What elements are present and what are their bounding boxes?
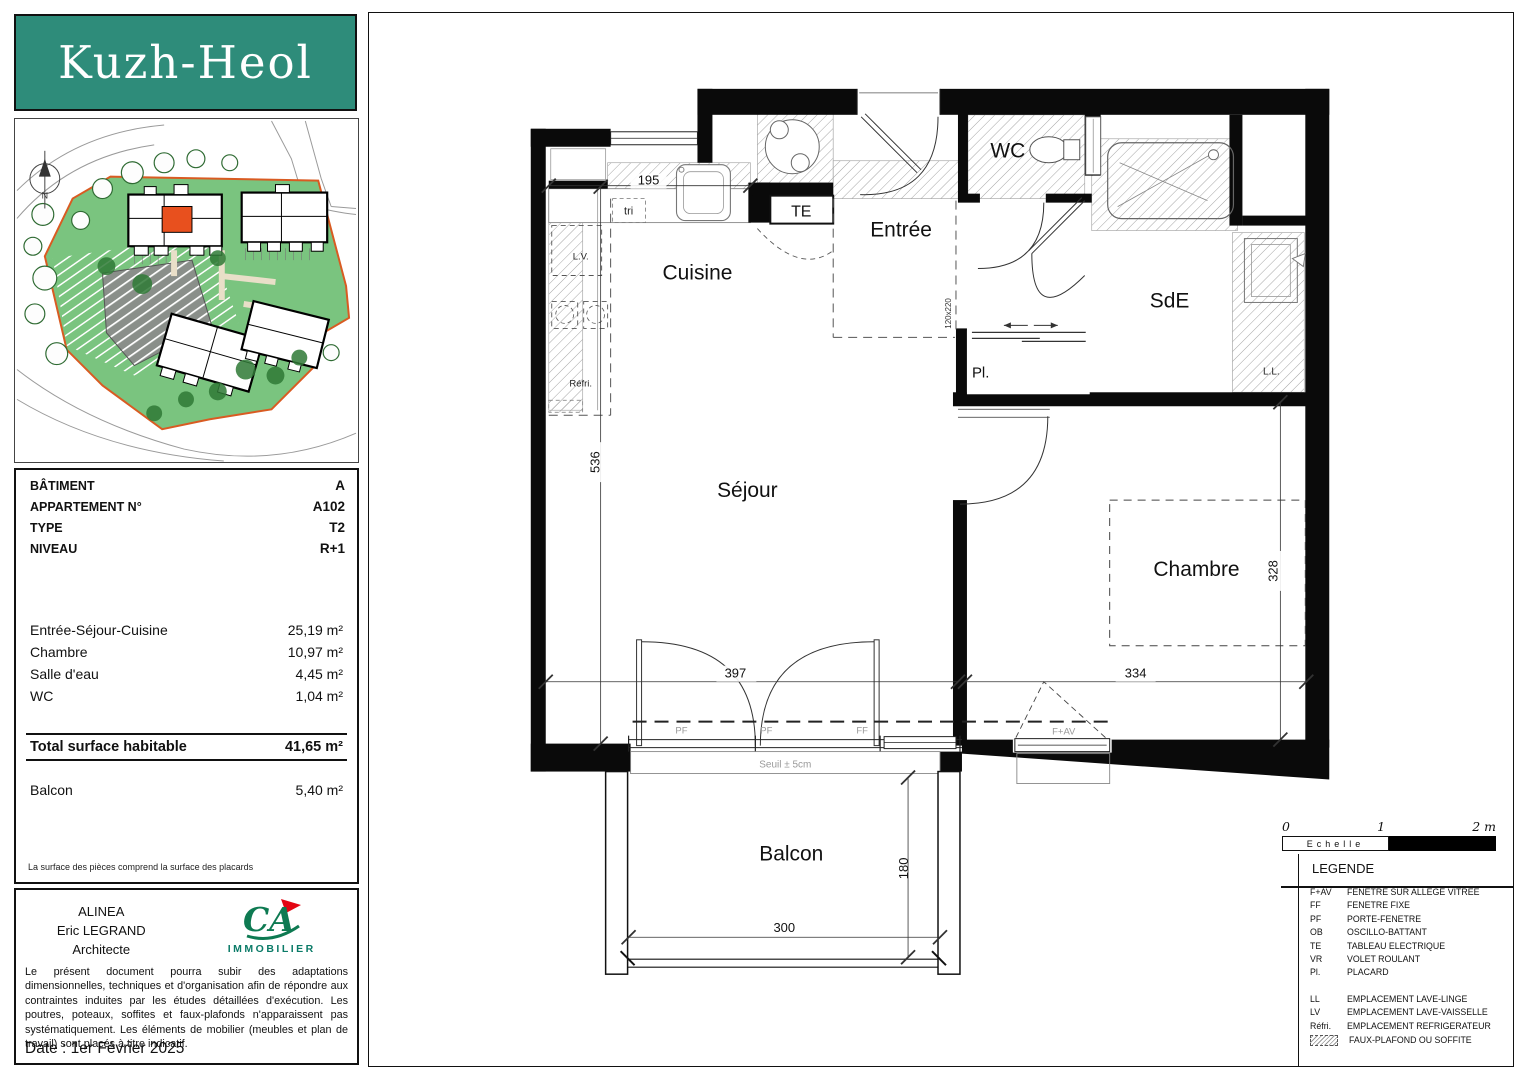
building-b xyxy=(242,185,328,252)
apartment-spec-table: BÂTIMENT A APPARTEMENT N° A102 TYPE T2 N… xyxy=(30,478,345,562)
hatch-swatch-icon xyxy=(1310,1035,1338,1046)
architect-panel: ALINEA Eric LEGRAND Architecte CA IMMOBI… xyxy=(14,888,359,1065)
site-plan-thumbnail: N xyxy=(14,118,359,463)
area-value: 1,04 m² xyxy=(296,688,343,704)
spec-value: A xyxy=(335,478,345,493)
area-row: Entrée-Séjour-Cuisine 25,19 m² xyxy=(30,622,343,644)
bedroom-door-arc xyxy=(960,416,1048,504)
developer-brand: CA IMMOBILIER xyxy=(187,898,358,959)
ca-logo: CA xyxy=(241,898,303,942)
hatched-zones xyxy=(549,107,1305,412)
area-value: 10,97 m² xyxy=(288,644,343,660)
area-row: WC 1,04 m² xyxy=(30,688,343,710)
spec-label: BÂTIMENT xyxy=(30,479,95,493)
dim-536: 536 xyxy=(588,451,603,473)
sde-door-arc xyxy=(1032,254,1085,298)
window-label-pf1: PF xyxy=(675,726,687,737)
legend-abbr: F+AV xyxy=(1310,886,1347,899)
room-label-chambre: Chambre xyxy=(1153,558,1239,581)
scale-bar: 0 1 2 m Echelle xyxy=(1282,819,1496,851)
legend-abbr: PF xyxy=(1310,913,1347,926)
legend-title: LEGENDE xyxy=(1299,854,1513,876)
legend-items-group1: F+AV FENETRE SUR ALLEGE VITREE FF FENETR… xyxy=(1299,876,1513,980)
legend-abbr: LV xyxy=(1310,1006,1347,1019)
dim-halos xyxy=(588,174,1282,936)
legend-panel: LEGENDE F+AV FENETRE SUR ALLEGE VITREE F… xyxy=(1298,854,1513,1066)
label-tri: tri xyxy=(624,206,633,218)
spec-label: TYPE xyxy=(30,521,63,535)
legend-divider xyxy=(1281,886,1513,888)
area-label: WC xyxy=(30,688,53,704)
label-te: TE xyxy=(791,204,811,221)
legend-label: EMPLACEMENT REFRIGERATEUR xyxy=(1347,1020,1513,1033)
legend-item: FF FENETRE FIXE xyxy=(1310,899,1513,912)
spec-row: APPARTEMENT N° A102 xyxy=(30,499,345,520)
legend-item: TE TABLEAU ELECTRIQUE xyxy=(1310,940,1513,953)
architect-firm: ALINEA xyxy=(16,902,187,921)
plan-date: Date : 1er Février 2025 xyxy=(25,1040,184,1058)
plan-labels: Cuisine Entrée WC SdE Séjour Chambre Bal… xyxy=(569,140,1280,936)
scale-label: Echelle xyxy=(1282,836,1389,851)
room-label-wc: WC xyxy=(990,140,1025,163)
dim-195: 195 xyxy=(638,173,660,188)
legend-abbr: TE xyxy=(1310,940,1347,953)
pf-door-leaf-right xyxy=(874,640,879,746)
area-value: 25,19 m² xyxy=(288,622,343,638)
area-row: Salle d'eau 4,45 m² xyxy=(30,666,343,688)
balcony-label: Balcon xyxy=(30,782,73,798)
placard xyxy=(967,322,1090,394)
legend-faux-plafond-row: FAUX-PLAFOND OU SOFFITE xyxy=(1299,1034,1513,1047)
area-label: Chambre xyxy=(30,644,88,660)
project-logo: Kuzh-Heol xyxy=(14,14,357,111)
area-row: Chambre 10,97 m² xyxy=(30,644,343,666)
site-plan-drawing: N xyxy=(15,119,358,462)
scale-ticks: 0 1 2 m xyxy=(1282,819,1496,836)
legend-label: EMPLACEMENT LAVE-LINGE xyxy=(1347,993,1513,1006)
scale-0: 0 xyxy=(1282,819,1290,834)
legend-abbr: Pl. xyxy=(1310,966,1347,979)
architect-title: Architecte xyxy=(16,940,187,959)
legend-item: Réfri. EMPLACEMENT REFRIGERATEUR xyxy=(1310,1020,1513,1033)
window-label-fav: F+AV xyxy=(1052,727,1076,738)
spec-label: APPARTEMENT N° xyxy=(30,500,142,514)
label-door-size: 120x220 xyxy=(944,298,953,329)
label-lv: L.V. xyxy=(573,252,589,263)
total-area-row: Total surface habitable 41,65 m² xyxy=(26,733,347,761)
svg-text:N: N xyxy=(42,191,48,201)
total-value: 41,65 m² xyxy=(285,739,343,755)
project-logo-text: Kuzh-Heol xyxy=(58,36,313,89)
area-value: 4,45 m² xyxy=(296,666,343,682)
legend-label: VOLET ROULANT xyxy=(1347,953,1513,966)
legend-label: FENETRE FIXE xyxy=(1347,899,1513,912)
legend-label: PLACARD xyxy=(1347,966,1513,979)
scale-2m: 2 m xyxy=(1472,819,1496,834)
architect-identity: ALINEA Eric LEGRAND Architecte xyxy=(16,898,187,959)
dim-334: 334 xyxy=(1125,666,1147,681)
dim-180: 180 xyxy=(896,858,911,880)
legend-label: OSCILLO-BATTANT xyxy=(1347,926,1513,939)
pf-door-leaf-left xyxy=(637,640,642,746)
toilet xyxy=(1030,137,1068,163)
spec-row: TYPE T2 xyxy=(30,520,345,541)
legend-label: PORTE-FENETRE xyxy=(1347,913,1513,926)
window-label-pf2: PF xyxy=(760,726,772,737)
wc-door-arc xyxy=(978,203,1044,269)
label-pl: Pl. xyxy=(972,364,989,381)
spec-value: T2 xyxy=(329,520,345,535)
legend-item: Pl. PLACARD xyxy=(1310,966,1513,979)
spec-row: BÂTIMENT A xyxy=(30,478,345,499)
legend-abbr: FF xyxy=(1310,899,1347,912)
spec-row: NIVEAU R+1 xyxy=(30,541,345,562)
scale-1: 1 xyxy=(1377,819,1385,834)
spec-label: NIVEAU xyxy=(30,542,77,556)
legend-item: F+AV FENETRE SUR ALLEGE VITREE xyxy=(1310,886,1513,899)
legend-abbr: OB xyxy=(1310,926,1347,939)
legend-abbr: Réfri. xyxy=(1310,1020,1347,1033)
room-areas-table: Entrée-Séjour-Cuisine 25,19 m² Chambre 1… xyxy=(30,622,343,710)
legend-abbr: LL xyxy=(1310,993,1347,1006)
scale-black-segment xyxy=(1389,836,1496,851)
spec-value: R+1 xyxy=(320,541,345,556)
total-label: Total surface habitable xyxy=(30,739,187,755)
legend-label: TABLEAU ELECTRIQUE xyxy=(1347,940,1513,953)
room-label-entree: Entrée xyxy=(870,219,932,242)
legend-label: FENETRE SUR ALLEGE VITREE xyxy=(1347,886,1513,899)
dim-328: 328 xyxy=(1265,560,1280,582)
legend-items-group2: LL EMPLACEMENT LAVE-LINGE LV EMPLACEMENT… xyxy=(1299,980,1513,1033)
dim-300: 300 xyxy=(773,920,795,935)
window-label-ff: FF xyxy=(856,726,868,737)
highlighted-apartment xyxy=(162,206,192,232)
legend-item: LL EMPLACEMENT LAVE-LINGE xyxy=(1310,993,1513,1006)
room-label-sde: SdE xyxy=(1150,289,1190,312)
label-refri: Réfri. xyxy=(569,378,592,389)
apartment-info-panel: BÂTIMENT A APPARTEMENT N° A102 TYPE T2 N… xyxy=(14,468,359,884)
legal-disclaimer: Le présent document pourra subir des ada… xyxy=(16,959,357,1052)
area-label: Entrée-Séjour-Cuisine xyxy=(30,622,168,638)
balcony-value: 5,40 m² xyxy=(296,782,343,798)
pf-door-arc-left xyxy=(642,642,756,746)
area-footnote: La surface des pièces comprend la surfac… xyxy=(28,862,253,872)
legend-label: EMPLACEMENT LAVE-VAISSELLE xyxy=(1347,1006,1513,1019)
plan-sheet: Cuisine Entrée WC SdE Séjour Chambre Bal… xyxy=(368,12,1514,1067)
area-label: Salle d'eau xyxy=(30,666,99,682)
spec-value: A102 xyxy=(313,499,345,514)
balcony-area-row: Balcon 5,40 m² xyxy=(30,782,343,798)
legend-item: LV EMPLACEMENT LAVE-VAISSELLE xyxy=(1310,1006,1513,1019)
architect-name: Eric LEGRAND xyxy=(16,921,187,940)
legend-label: FAUX-PLAFOND OU SOFFITE xyxy=(1349,1034,1472,1047)
dim-397: 397 xyxy=(725,666,747,681)
kitchen-sink xyxy=(677,165,731,221)
legend-item: VR VOLET ROULANT xyxy=(1310,953,1513,966)
floorplan-sheet: { "logo": { "text": "Kuzh-Heol", "bg_col… xyxy=(0,0,1528,1079)
legend-item: PF PORTE-FENETRE xyxy=(1310,913,1513,926)
legend-item: OB OSCILLO-BATTANT xyxy=(1310,926,1513,939)
label-seuil: Seuil ± 5cm xyxy=(759,760,811,771)
room-label-balcon: Balcon xyxy=(759,842,823,865)
label-ll: L.L. xyxy=(1263,366,1280,377)
legend-abbr: VR xyxy=(1310,953,1347,966)
windows xyxy=(629,682,1113,784)
immobilier-label: IMMOBILIER xyxy=(228,943,316,955)
room-label-cuisine: Cuisine xyxy=(663,261,733,284)
room-label-sejour: Séjour xyxy=(717,479,778,502)
